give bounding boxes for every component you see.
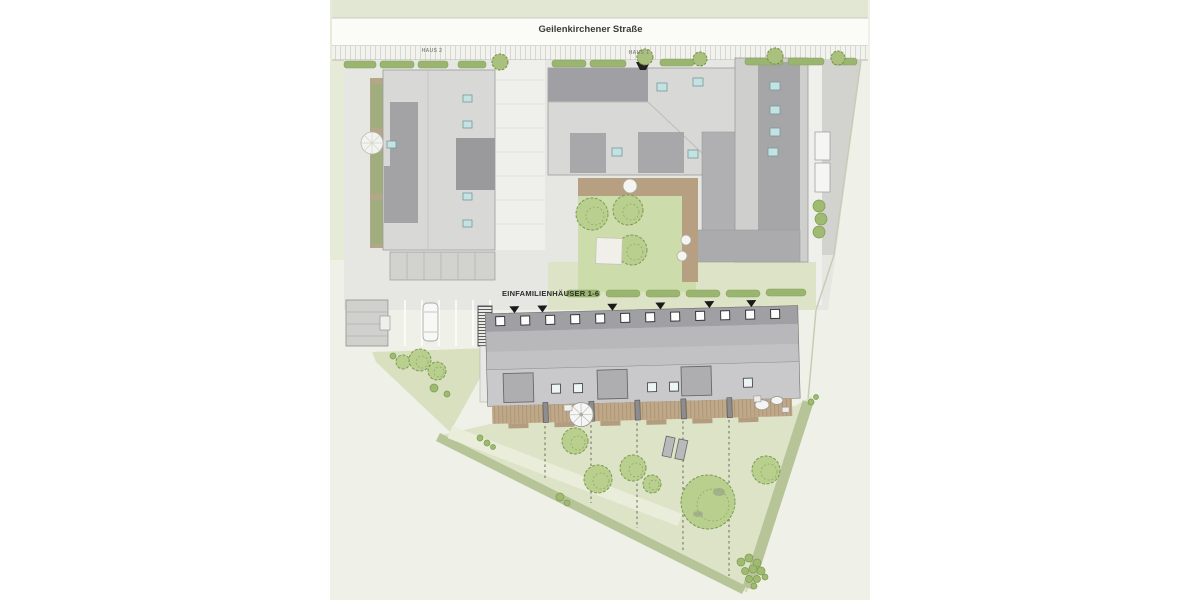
tree-icon (584, 465, 612, 493)
street-name-label: Geilenkirchener Straße (518, 24, 663, 35)
furniture-icon (681, 235, 691, 245)
haus-2-label: HAUS 2 (414, 48, 450, 54)
large-tree-icon (681, 475, 735, 529)
outbuilding (346, 300, 390, 346)
tree-icon (562, 428, 588, 454)
street-verge (332, 0, 868, 18)
tree-icon (409, 349, 431, 371)
tree-icon (613, 195, 643, 225)
garage-row (390, 252, 495, 280)
tree-icon (428, 362, 446, 380)
building-row-houses (485, 299, 800, 429)
tree-icon (752, 456, 780, 484)
furniture-icon (677, 251, 687, 261)
parked-car (423, 303, 438, 341)
white-tree-icon (361, 132, 383, 154)
tree-icon (396, 355, 410, 369)
building-haus-2 (361, 70, 495, 250)
tree-icon (620, 455, 646, 481)
sandbox (596, 238, 623, 265)
haus-1-label: HAUS 1 (621, 50, 657, 56)
table-icon (623, 179, 637, 193)
site-plan: Geilenkirchener Straße HAUS 2 HAUS 1 EIN… (330, 0, 870, 600)
tree-icon (576, 198, 608, 230)
center-footpath (495, 60, 545, 250)
tree-icon (643, 475, 661, 493)
row-houses-label: EINFAMILIENHÄUSER 1-6 (502, 289, 599, 298)
site-plan-drawing (330, 0, 870, 600)
